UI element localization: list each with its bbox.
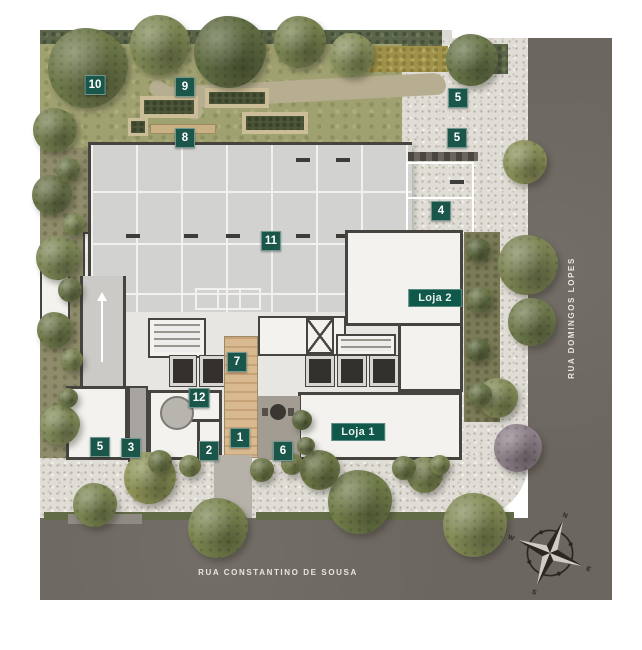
compass-s: S bbox=[531, 589, 538, 597]
marker-badge-6: 6 bbox=[273, 441, 293, 461]
street-label-constantino: RUA CONSTANTINO DE SOUSA bbox=[168, 566, 388, 578]
compass-n: N bbox=[561, 512, 568, 520]
marker-badge-8: 8 bbox=[175, 128, 195, 148]
site-plan: 10985541171253216 Loja 2 Loja 1 RUA CONS… bbox=[0, 0, 642, 650]
marker-badge-3: 3 bbox=[121, 438, 141, 458]
compass-w: W bbox=[507, 534, 516, 543]
shop-label-loja2: Loja 2 bbox=[408, 289, 462, 307]
marker-badge-12: 12 bbox=[189, 388, 210, 408]
marker-badge-5: 5 bbox=[447, 128, 467, 148]
marker-badge-2: 2 bbox=[199, 441, 219, 461]
marker-badge-4: 4 bbox=[431, 201, 451, 221]
marker-badge-10: 10 bbox=[85, 75, 106, 95]
marker-badge-11: 11 bbox=[261, 231, 281, 251]
marker-badge-5: 5 bbox=[90, 437, 110, 457]
marker-badge-1: 1 bbox=[230, 428, 250, 448]
compass-svg: N E S W bbox=[504, 507, 596, 599]
compass-e: E bbox=[585, 566, 592, 574]
compass-rose: N E S W bbox=[504, 507, 596, 599]
marker-badge-5: 5 bbox=[448, 88, 468, 108]
shop-label-loja1: Loja 1 bbox=[331, 423, 385, 441]
marker-badge-7: 7 bbox=[227, 352, 247, 372]
street-label-domingos: RUA DOMINGOS LOPES bbox=[564, 253, 578, 383]
marker-badge-9: 9 bbox=[175, 77, 195, 97]
